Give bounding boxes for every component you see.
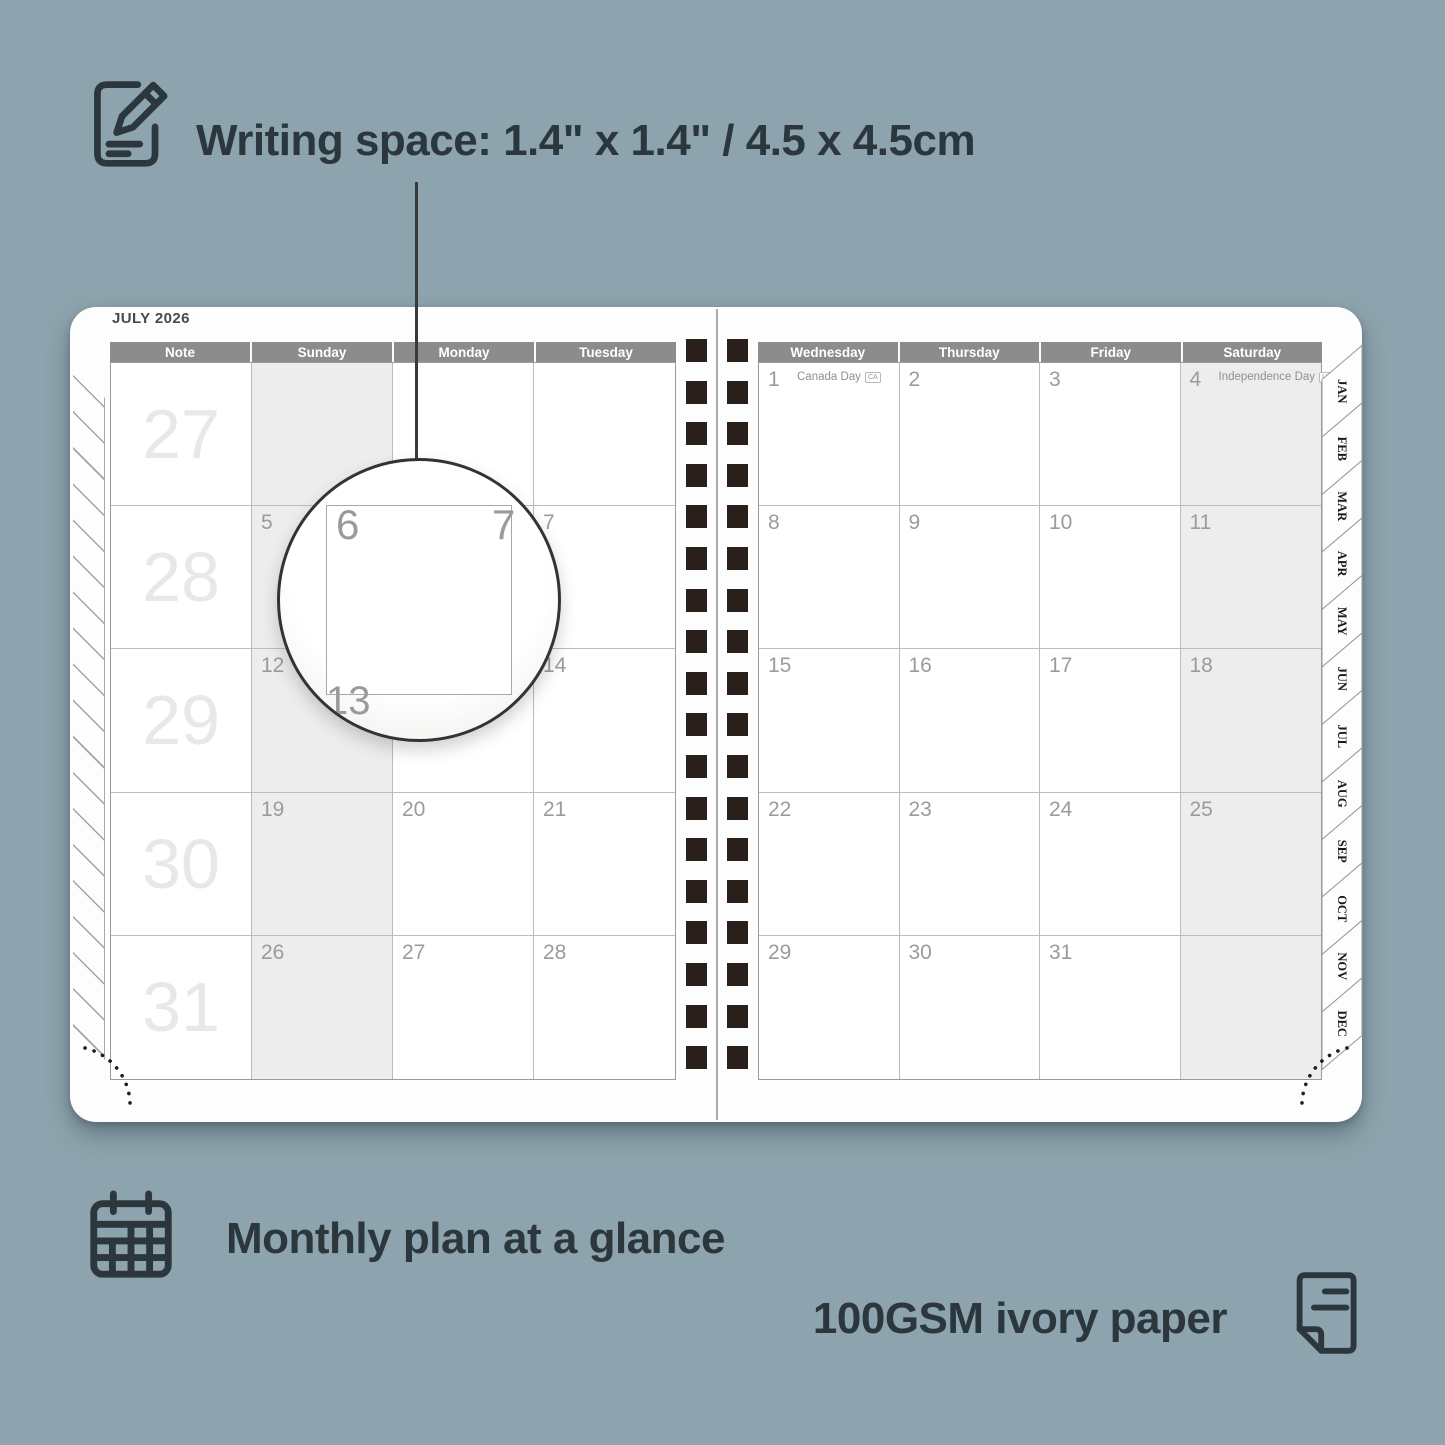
binding-hole [727,589,748,612]
day-number: 20 [402,798,425,822]
calendar-cell: 1Canada DayCA [759,363,900,506]
month-tab-label: DEC [1335,1011,1349,1037]
month-tab-label: MAR [1335,491,1349,522]
binding-hole [727,755,748,778]
binding-hole [727,1005,748,1028]
calendar-cell: 29 [111,649,252,792]
day-header: Wednesday [758,342,898,362]
day-number: 5 [261,511,273,535]
calendar-cell: 25 [1181,793,1322,936]
binding-hole [686,339,707,362]
monthly-plan-annotation: Monthly plan at a glance [226,1214,725,1264]
calendar-cell: 19 [252,793,393,936]
month-tab-label: MAY [1335,607,1349,636]
binding-hole [686,464,707,487]
calendar-cell: 17 [1040,649,1181,792]
binding-hole [686,797,707,820]
calendar-cell [534,363,675,506]
month-tab-label: JUL [1335,724,1349,748]
calendar-cell: 16 [900,649,1041,792]
calendar-cell: 26 [252,936,393,1079]
writing-space-annotation: Writing space: 1.4" x 1.4" / 4.5 x 4.5cm [196,116,975,166]
holiday-name: Canada Day [797,371,861,383]
magnified-day-number: 6 [336,501,359,549]
day-number: 7 [543,511,555,535]
left-page-header: NoteSundayMondayTuesday [110,342,676,362]
binding-hole [727,1046,748,1069]
binding-hole [686,713,707,736]
binding-hole [686,1005,707,1028]
day-header: Saturday [1183,342,1323,362]
month-title: JULY 2026 [112,310,190,327]
calendar-cell: 27 [393,936,534,1079]
paper-sheet-icon [1278,1264,1368,1362]
magnifier-pointer-line [415,182,418,462]
calendar-cell: 30 [111,793,252,936]
day-number: 12 [261,654,284,678]
day-number: 18 [1190,654,1213,678]
binding-hole [686,880,707,903]
month-tab-label: OCT [1335,895,1349,923]
binding-hole [686,838,707,861]
calendar-cell: 24 [1040,793,1181,936]
day-number: 4 [1190,368,1202,392]
calendar-cell: 31 [1040,936,1181,1079]
binding-hole [686,422,707,445]
calendar-cell: 4Independence DayUS [1181,363,1322,506]
day-header: Thursday [900,342,1040,362]
month-tab-label: JAN [1335,379,1349,403]
calendar-cell: 27 [111,363,252,506]
day-number: 27 [402,941,425,965]
day-header: Note [110,342,250,362]
right-page-header: WednesdayThursdayFridaySaturday [758,342,1322,362]
holiday-label: Independence DayUS [1219,371,1335,383]
binding-hole [686,755,707,778]
calendar-cell: 2 [900,363,1041,506]
day-number: 10 [1049,511,1072,535]
binding-hole [727,880,748,903]
calendar-cell: 22 [759,793,900,936]
day-number: 3 [1049,368,1061,392]
calendar-cell: 30 [900,936,1041,1079]
day-number: 26 [261,941,284,965]
day-number: 19 [261,798,284,822]
writing-pencil-icon [84,74,180,172]
binding-hole [727,464,748,487]
binding-hole [727,672,748,695]
month-tab-label: APR [1335,551,1349,578]
binding-hole [727,630,748,653]
day-number: 28 [543,941,566,965]
binding-hole [686,547,707,570]
day-number: 22 [768,798,791,822]
corner-dots-left [68,1040,148,1120]
day-header: Tuesday [536,342,676,362]
calendar-cell: 23 [900,793,1041,936]
day-number: 30 [909,941,932,965]
binding-hole [727,713,748,736]
calendar-cell: 18 [1181,649,1322,792]
day-number: 16 [909,654,932,678]
day-number: 21 [543,798,566,822]
week-number: 28 [142,537,220,617]
calendar-cell: 15 [759,649,900,792]
binding-hole [686,1046,707,1069]
binding-hole [727,921,748,944]
day-header: Sunday [252,342,392,362]
binding-hole [727,547,748,570]
calendar-cell: 3 [1040,363,1181,506]
left-page-edge-hatching [73,372,105,1060]
day-number: 24 [1049,798,1072,822]
binding-hole [686,630,707,653]
binding-hole [686,963,707,986]
right-page-grid: 1Canada DayCA234Independence DayUS891011… [758,362,1322,1080]
calendar-cell: 10 [1040,506,1181,649]
calendar-cell: 8 [759,506,900,649]
binding-hole [727,505,748,528]
binding-hole [727,339,748,362]
magnified-below-day: 13 [326,679,371,724]
week-number: 31 [142,967,220,1047]
corner-dots-right [1284,1040,1364,1120]
week-number: 30 [142,824,220,904]
calendar-cell: 20 [393,793,534,936]
calendar-cell: 28 [111,506,252,649]
binding-hole [686,921,707,944]
binding-hole [727,381,748,404]
day-number: 17 [1049,654,1072,678]
binding-hole [727,797,748,820]
calendar-cell: 29 [759,936,900,1079]
day-number: 11 [1190,511,1212,535]
month-tab-label: FEB [1335,437,1349,461]
day-number: 15 [768,654,791,678]
calendar-cell: 11 [1181,506,1322,649]
day-number: 2 [909,368,921,392]
day-number: 9 [909,511,921,535]
spiral-binding [686,339,748,1079]
binding-hole [686,589,707,612]
binding-hole [727,422,748,445]
binding-hole [727,838,748,861]
calendar-cell: 9 [900,506,1041,649]
holiday-country-badge: CA [865,372,881,383]
calendar-cell: 28 [534,936,675,1079]
binding-hole [686,505,707,528]
day-number: 8 [768,511,780,535]
month-tab-label: JUN [1335,667,1349,691]
month-tab-label: SEP [1335,840,1349,863]
calendar-cell: 14 [534,649,675,792]
day-number: 1 [768,368,780,392]
product-image: Writing space: 1.4" x 1.4" / 4.5 x 4.5cm… [0,0,1445,1445]
calendar-cell: 21 [534,793,675,936]
paper-annotation: 100GSM ivory paper [813,1294,1227,1344]
binding-hole [686,381,707,404]
writing-space-magnifier: 6 7 13 [277,458,561,742]
binding-hole [686,672,707,695]
month-tab-strip: JANFEBMARAPRMAYJUNJULAUGSEPOCTNOVDEC [1322,340,1363,1130]
holiday-label: Canada DayCA [797,371,881,383]
month-tab-label: NOV [1335,952,1349,980]
day-number: 31 [1049,941,1072,965]
day-number: 23 [909,798,932,822]
calendar-grid-icon [82,1188,180,1286]
week-number: 29 [142,680,220,760]
month-tab-label: AUG [1335,780,1349,808]
binding-hole [727,963,748,986]
holiday-name: Independence Day [1219,371,1316,383]
week-number: 27 [142,394,220,474]
day-number: 25 [1190,798,1213,822]
magnified-adjacent-day: 7 [492,501,515,549]
day-number: 29 [768,941,791,965]
day-header: Friday [1041,342,1181,362]
